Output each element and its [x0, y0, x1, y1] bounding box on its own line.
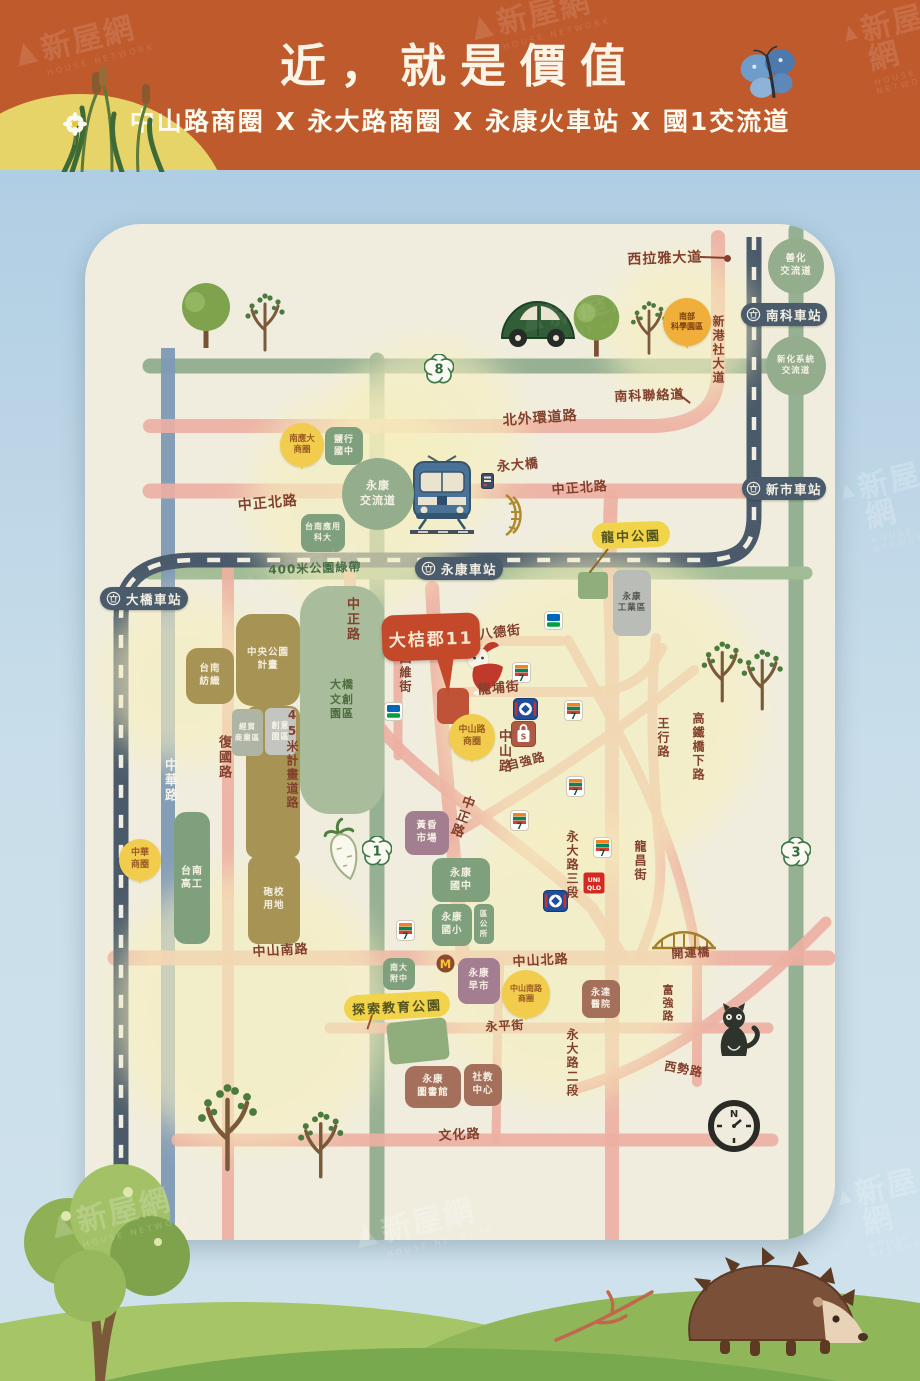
- area-label: 中心: [472, 1085, 493, 1098]
- familymart-icon: [384, 702, 403, 725]
- tree-icon: [566, 292, 627, 359]
- road-label: 永大路三段: [564, 830, 581, 900]
- seven-eleven-icon: 7: [396, 920, 415, 945]
- balloon-label: 商圈: [293, 445, 310, 456]
- area-label: 台南應用: [305, 522, 341, 533]
- sparse-tree-icon: [240, 292, 290, 356]
- svg-text:S: S: [521, 733, 527, 742]
- coral-branch: [550, 1282, 660, 1350]
- watermark-sub: HOUSE NETWORK: [871, 519, 920, 554]
- nanke-station: 南科車站: [741, 303, 827, 326]
- freeway-8-shield: 8: [424, 354, 454, 388]
- mcdonalds-icon: M: [436, 954, 455, 977]
- area-label: 公: [480, 919, 489, 929]
- yongda-bridge-icon: [502, 490, 526, 544]
- area-label: 台南: [199, 663, 220, 676]
- road-label: 中山北路: [512, 948, 569, 970]
- sparse-tree-icon: [292, 1110, 350, 1179]
- svg-text:1: 1: [372, 845, 381, 860]
- station-name: 大橋車站: [126, 589, 182, 608]
- uniqlo-logo: UNIQLO: [583, 872, 605, 898]
- nanyingda-shangquan-balloon: 南應大商圈: [280, 423, 324, 467]
- balloon-label: 中山路: [458, 725, 485, 737]
- area-label: 所: [480, 929, 489, 939]
- yongda-bridge-icon: [502, 490, 526, 540]
- xinhua-system-interchange: 新化系統交流道: [766, 336, 826, 396]
- station-name: 南科車站: [766, 305, 822, 324]
- svg-text:3: 3: [791, 846, 800, 861]
- area-label: 文創: [330, 693, 354, 708]
- watermark-brand: 新屋網: [852, 1164, 920, 1239]
- svg-text:7: 7: [571, 712, 577, 721]
- station-name: 永康車站: [441, 559, 497, 578]
- area-label: 用地: [263, 900, 284, 913]
- balloon-tail: [681, 338, 693, 355]
- hedgehog-illustration: [666, 1240, 884, 1376]
- coral-branch: [550, 1282, 660, 1346]
- interchange-label: 新化系統: [777, 355, 815, 366]
- svg-text:M: M: [440, 957, 451, 971]
- seven-eleven-icon: 7: [564, 700, 583, 725]
- hedgehog-illustration: [666, 1240, 884, 1380]
- area-label: 計畫: [257, 660, 278, 673]
- area-label: 永康: [622, 592, 641, 603]
- site-watermark: 新屋網HOUSE NETWORK: [837, 458, 920, 558]
- seven-eleven-icon: 7: [593, 837, 612, 862]
- district-office-area: 區公所: [474, 904, 494, 944]
- exploration-park-area: [386, 1017, 450, 1065]
- trade-commercial-area: 經貿商業區: [232, 709, 263, 756]
- area-label: 附中: [390, 974, 408, 985]
- road-label: 王行路: [655, 717, 672, 759]
- svg-text:7: 7: [600, 849, 606, 858]
- area-label: 永達: [591, 987, 611, 999]
- yongkang-industrial-area: 永康工業區: [613, 570, 651, 636]
- svg-text:QLO: QLO: [587, 885, 601, 892]
- road-label: 中山南路: [252, 938, 309, 960]
- station-name: 新市車站: [766, 479, 822, 498]
- watermark-logo: [834, 1182, 855, 1211]
- social-edu-center-area: 社教中心: [464, 1064, 502, 1106]
- tra-railway-icon: [106, 591, 121, 606]
- shopping-bag-icon: S: [511, 721, 536, 751]
- area-label: 園區: [330, 707, 354, 722]
- sparse-tree-icon: [736, 648, 789, 711]
- road-label: 南科聯絡道: [614, 384, 685, 405]
- artillery-school-land-area: 砲校用地: [248, 856, 300, 944]
- road-label: 高鐵橋下路: [690, 712, 707, 782]
- southern-science-park-balloon: 南部科學園區: [663, 298, 711, 346]
- area-label: 市場: [416, 833, 437, 846]
- sparse-tree-icon: [190, 1082, 265, 1178]
- compass-icon: N: [704, 1096, 764, 1156]
- road-label: 永大路二段: [564, 1028, 581, 1098]
- tainan-industrial-hs-area: 台南高工: [174, 812, 210, 944]
- watermark-brand: 新屋網: [855, 458, 920, 533]
- area-label: 鹽行: [334, 434, 354, 446]
- balloon-label: 商圈: [518, 994, 534, 1004]
- nanda-affiliated-hs-area: 南大附中: [383, 958, 415, 990]
- svg-text:7: 7: [517, 822, 523, 831]
- yanxing-jhs-area: 鹽行國中: [325, 427, 363, 465]
- road-label: 開運橋: [671, 943, 711, 962]
- svg-text:UNI: UNI: [588, 877, 601, 884]
- zhongshan-rd-shangquan-balloon: 中山路商圈: [449, 714, 495, 760]
- tra-railway-icon: [746, 307, 761, 322]
- sparse-tree-icon: [190, 1082, 265, 1172]
- svg-text:7: 7: [403, 932, 409, 941]
- white-flower-icon: [62, 112, 88, 150]
- area-label: 醫院: [591, 999, 611, 1011]
- cat-illustration: [708, 1002, 760, 1062]
- evening-market-area: 黃昏市場: [405, 811, 449, 855]
- tree-icon: [174, 280, 238, 350]
- daqiao-station: 大橋車站: [100, 587, 188, 610]
- svg-text:N: N: [730, 1109, 738, 1120]
- area-label: 區: [480, 909, 489, 919]
- yongkang-es-area: 永康國小: [432, 904, 472, 946]
- watermark-logo: [837, 476, 858, 505]
- road-label: 西拉雅大道: [627, 246, 703, 269]
- road-label: 永大橋: [496, 452, 540, 475]
- butterfly-illustration: [738, 44, 804, 110]
- balloon-label: 科學園區: [671, 322, 703, 332]
- map-card: 大桔郡11 大橋文創園區中央公園計畫砲校用地台南紡織經貿商業區創意園區永康工業區…: [85, 224, 835, 1240]
- area-label: 國中: [450, 880, 472, 894]
- balloon-label: 商圈: [131, 860, 149, 872]
- area-label: 中央公園: [247, 647, 289, 660]
- balloon-tail: [466, 752, 478, 769]
- tree-icon: [174, 280, 238, 354]
- balloon-tail: [134, 873, 146, 890]
- zhonghua-shangquan-balloon: 中華商圈: [119, 839, 161, 881]
- interchange-label: 交流道: [780, 266, 812, 279]
- balloon-label: 中山南路: [510, 984, 542, 994]
- familymart-icon: [544, 611, 563, 634]
- tainan-applied-univ-area: 台南應用科大: [301, 514, 345, 552]
- road-label: 中正路: [342, 597, 361, 642]
- sparse-tree-icon: [240, 292, 290, 352]
- road-label: 中正北路: [551, 475, 608, 498]
- central-park-plan-area: 中央公園計畫: [236, 614, 300, 706]
- road-label: 400米公園綠帶: [268, 558, 362, 578]
- area-label: 永康: [450, 867, 472, 881]
- area-label: 商業區: [235, 733, 261, 743]
- svg-text:7: 7: [573, 788, 579, 797]
- train-illustration: [404, 450, 480, 540]
- road-label: 45米計畫道路: [284, 708, 301, 810]
- interchange-label: 交流道: [782, 366, 811, 377]
- tra-railway-icon: [421, 561, 436, 576]
- seven-eleven-icon: 7: [510, 810, 529, 835]
- yongkang-station: 永康車站: [415, 557, 503, 580]
- road-label: 富強路: [659, 984, 675, 1023]
- project-flag: 大桔郡11: [381, 612, 481, 661]
- seven-eleven-icon: 7: [566, 776, 585, 801]
- big-tree-illustration: [8, 1146, 198, 1381]
- tainan-spinning-area: 台南紡織: [186, 648, 234, 704]
- balloon-label: 中華: [131, 848, 149, 860]
- yongkang-library-area: 永康圖書館: [405, 1066, 461, 1108]
- area-label: 大橋: [330, 678, 354, 693]
- sparse-tree-icon: [292, 1110, 350, 1184]
- yongda-hospital-area: 永達醫院: [582, 980, 620, 1018]
- xinshi-station: 新市車站: [742, 477, 826, 500]
- area-label: 黃昏: [416, 820, 437, 833]
- area-label: 南大: [390, 963, 408, 974]
- project-name: 大桔郡11: [388, 623, 473, 651]
- compass-icon: N: [704, 1096, 764, 1160]
- area-label: 科大: [314, 533, 332, 544]
- balloon-label: 南應大: [289, 434, 315, 445]
- yongkang-jhs-area: 永康國中: [432, 858, 490, 902]
- exploration-edu-park-label: 探索教育公園: [343, 990, 450, 1022]
- interchange-label: 善化: [785, 253, 806, 266]
- area-label: 圖書館: [417, 1087, 449, 1100]
- balloon-tail: [296, 459, 308, 476]
- area-label: 永康: [441, 912, 462, 925]
- road-label: 文化路: [438, 1123, 481, 1144]
- area-label: 經貿: [239, 722, 256, 732]
- area-label: 早市: [468, 981, 489, 994]
- area-label: 台南: [181, 865, 203, 879]
- area-label: 工業區: [618, 603, 647, 614]
- area-label: 國中: [334, 446, 354, 458]
- area-label: 國小: [441, 925, 462, 938]
- road-label: 永平街: [485, 1016, 525, 1035]
- tra-railway-icon: [746, 481, 761, 496]
- interchange-label: 永康: [366, 479, 390, 494]
- route-marker-sign: [481, 473, 494, 493]
- yongkang-morning-market-area: 永康早市: [458, 958, 500, 1004]
- big-tree-illustration: [8, 1146, 198, 1381]
- tree-icon: [566, 292, 627, 362]
- road-label: 新港社大道: [710, 315, 727, 385]
- longzhong-park-area: [578, 572, 608, 599]
- white-flower-icon: [62, 112, 88, 146]
- balloon-label: 南部: [679, 312, 695, 322]
- svg-text:8: 8: [434, 363, 443, 378]
- balloon-label: 商圈: [463, 737, 481, 749]
- cat-illustration: [708, 1002, 760, 1058]
- area-label: 社教: [472, 1072, 493, 1085]
- area-label: 永康: [422, 1074, 443, 1087]
- road-label: 中華路: [160, 758, 179, 803]
- area-label: 高工: [181, 878, 203, 892]
- longzhong-park-label: 龍中公園: [592, 521, 671, 550]
- zhongshan-s-rd-shangquan-balloon: 中山南路商圈: [502, 970, 550, 1018]
- road-label: 龍埔街: [477, 675, 521, 698]
- area-label: 永康: [468, 968, 489, 981]
- freeway-3-shield: 3: [781, 837, 811, 871]
- shanhua-interchange: 善化交流道: [768, 238, 824, 294]
- train-illustration: [404, 450, 480, 536]
- poster-page: 近，就是價值 中山路商圈 X 永大路商圈 X 永康火車站 X 國1交流道 大桔郡…: [0, 0, 920, 1381]
- area-label: 砲校: [263, 887, 284, 900]
- road-label: 龍昌街: [632, 840, 649, 882]
- yongkang-interchange: 永康交流道: [342, 458, 414, 530]
- sparse-tree-icon: [736, 648, 789, 715]
- interchange-label: 交流道: [360, 494, 396, 509]
- road-label: 復國路: [214, 735, 233, 780]
- area-label: 紡織: [199, 676, 220, 689]
- butterfly-illustration: [738, 44, 804, 106]
